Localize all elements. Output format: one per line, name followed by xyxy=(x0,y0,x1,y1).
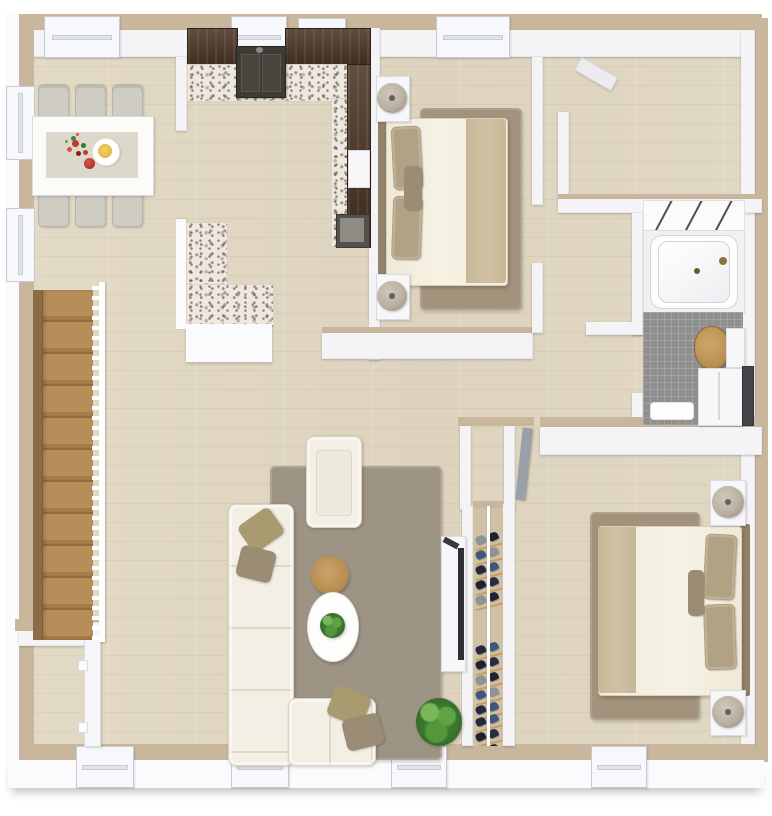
wall-hallway-jog xyxy=(586,322,643,335)
stairs-treads xyxy=(42,290,93,640)
wall-den-left xyxy=(558,112,569,200)
bedroom2-blanket xyxy=(598,527,636,693)
window-dining-left-lower xyxy=(6,208,35,282)
dining-chair xyxy=(38,192,69,227)
bathroom-tile-wall xyxy=(643,200,745,234)
shoe-pair xyxy=(475,594,487,605)
peninsula-side-panel xyxy=(176,219,186,329)
kitchen-cabinet-top-left xyxy=(187,28,238,68)
stove-top xyxy=(340,218,364,242)
shoe-pair xyxy=(475,689,487,700)
refrigerator xyxy=(348,150,370,188)
shoe-pair xyxy=(475,644,487,655)
armchair-cushion xyxy=(316,450,352,516)
window-dining-top xyxy=(44,16,120,58)
wall-closet-right xyxy=(503,504,515,746)
window-bedroom1-top xyxy=(436,16,510,58)
closet-hanging-rod xyxy=(487,506,490,746)
sink-faucet xyxy=(256,47,263,53)
wall-bedroom1-right-lower xyxy=(532,263,543,333)
bedroom1-accent-pillow xyxy=(404,166,422,210)
wall-hall-sill xyxy=(458,417,534,426)
bedroom2-pillow xyxy=(702,533,737,601)
shoe-pair xyxy=(475,731,487,742)
large-plant xyxy=(416,698,462,746)
bedroom2-accent-pillow xyxy=(688,570,704,616)
kitchen-cabinet-top-right xyxy=(285,28,371,68)
dining-chair xyxy=(112,192,143,227)
vanity-side-cabinet xyxy=(742,366,754,426)
dining-chair xyxy=(112,84,143,119)
round-wood-coffee-table xyxy=(311,556,349,594)
shoe-pair xyxy=(475,659,487,670)
stairs-stringer xyxy=(33,290,42,640)
shoe-pair xyxy=(475,716,487,727)
wall-bedroom2-top xyxy=(540,427,762,455)
wall-bathroom-left-upper xyxy=(632,213,643,335)
wall-bedroom1-right-upper xyxy=(532,57,543,205)
shoe-pair xyxy=(475,549,487,560)
peninsula-base-face xyxy=(186,324,272,362)
dining-chair xyxy=(75,192,106,227)
wall-bedroom1-bottom xyxy=(322,333,533,359)
vanity-door-line xyxy=(718,372,720,420)
exterior-wall-top-face xyxy=(10,30,762,57)
shoe-pair xyxy=(475,534,487,545)
floor-plan xyxy=(0,0,772,816)
window-bedroom2-bottom xyxy=(591,746,647,788)
wall-dining-kitchen xyxy=(176,57,187,131)
peninsula-counter-vertical xyxy=(186,222,228,288)
bathtub-faucet xyxy=(719,257,727,265)
tile-accent-line xyxy=(712,200,734,234)
peninsula-counter-horizontal xyxy=(186,284,274,328)
shoe-pair xyxy=(475,564,487,575)
wall-hall-right xyxy=(504,426,515,510)
stairs-handrail xyxy=(99,282,105,642)
bedroom1-lamp-top xyxy=(377,83,407,113)
plate-food xyxy=(98,144,112,158)
bedroom2-lamp-top xyxy=(712,486,744,518)
tile-accent-line xyxy=(652,200,674,234)
wall-hall-left xyxy=(460,426,471,510)
toilet-tank xyxy=(726,328,745,368)
window-entry-bottom xyxy=(76,746,134,788)
bath-mat xyxy=(650,402,694,420)
toilet-seat xyxy=(694,326,730,370)
exterior-wall-top-surface xyxy=(10,14,762,30)
dining-chair xyxy=(38,84,69,119)
tile-accent-line xyxy=(682,200,704,234)
entry-closet-door-hinge-bottom xyxy=(78,722,88,733)
window-dining-left-upper xyxy=(6,86,35,160)
shoe-pair xyxy=(475,579,487,590)
sink-basin-left xyxy=(241,54,260,92)
exterior-wall-right-surface xyxy=(755,18,768,762)
potted-plant-small xyxy=(320,613,345,638)
shoe-pair xyxy=(475,674,487,685)
bathroom-vanity xyxy=(698,368,744,426)
bedroom1-blanket xyxy=(466,119,506,283)
sink-basin-right xyxy=(262,54,281,92)
flower-centerpiece xyxy=(72,140,79,147)
bedroom1-lamp-bottom xyxy=(377,281,407,311)
bathtub-drain xyxy=(694,268,700,274)
bedroom2-pillow xyxy=(703,603,737,670)
apple xyxy=(84,158,95,169)
dining-chair xyxy=(75,84,106,119)
entry-closet-door-hinge-top xyxy=(78,660,88,671)
tv xyxy=(458,548,464,660)
bedroom2-lamp-bottom xyxy=(712,696,744,728)
